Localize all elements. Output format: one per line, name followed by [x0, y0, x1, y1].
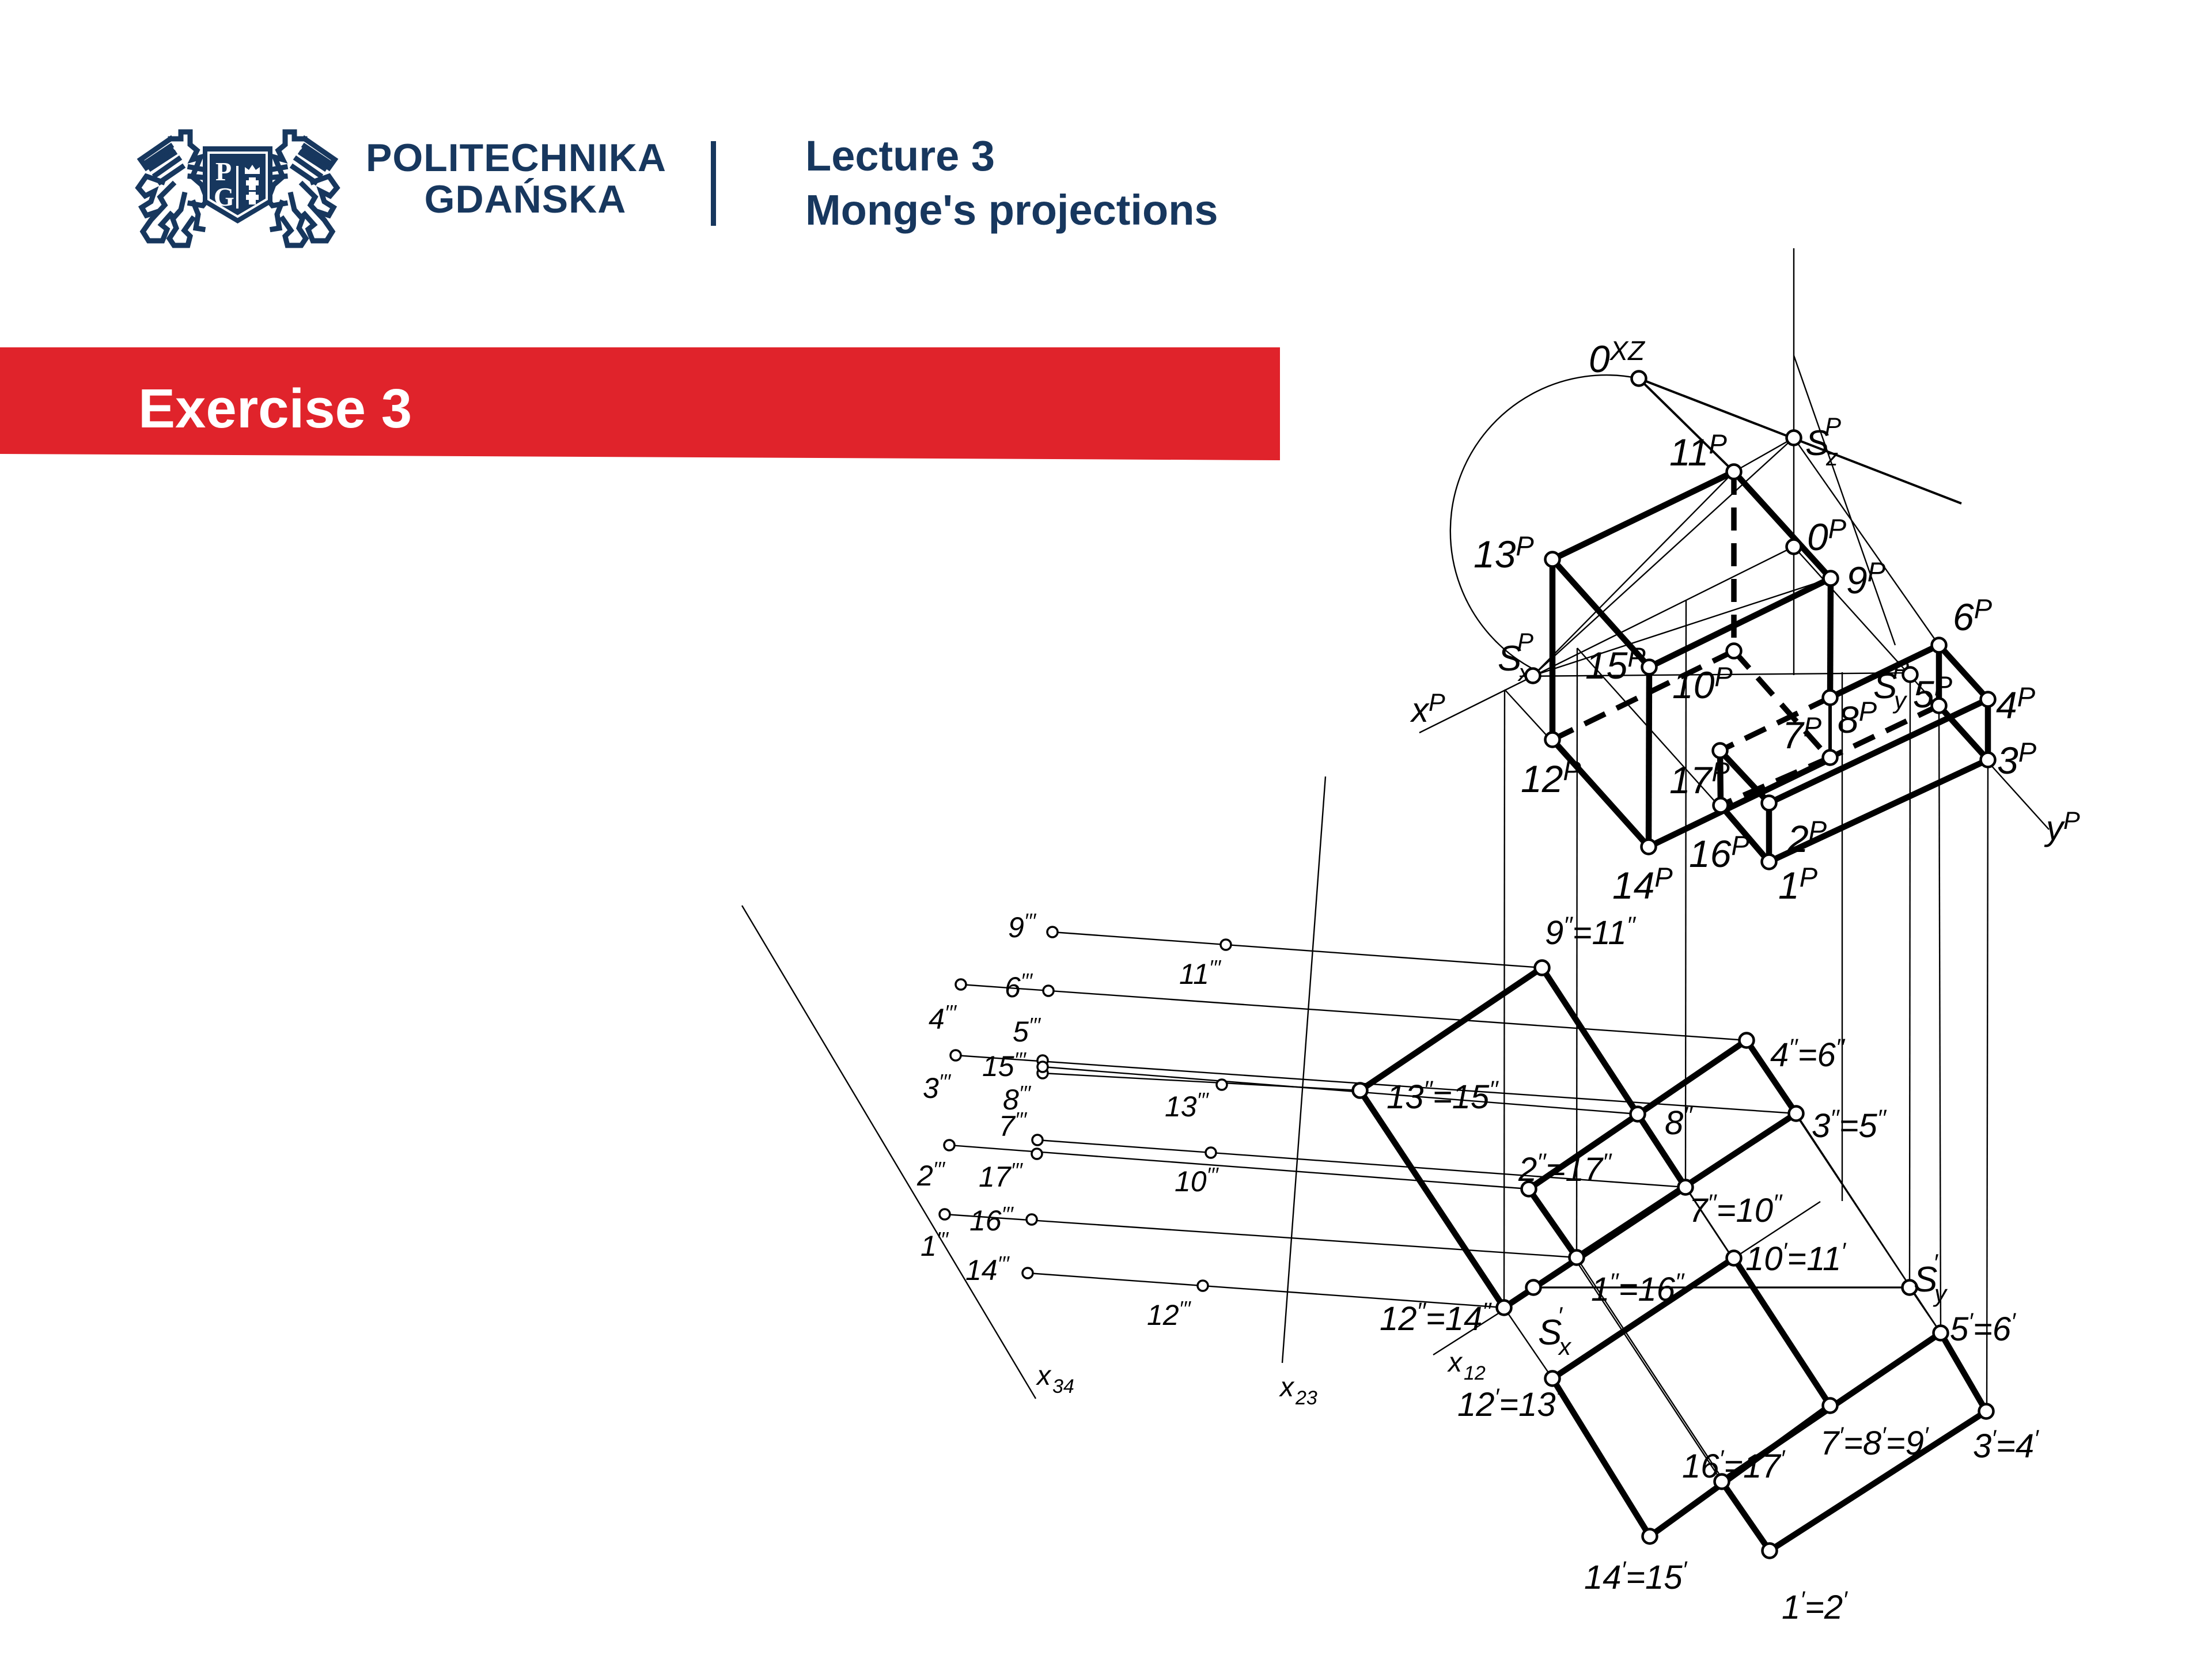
svg-text:y: y — [1933, 1280, 1948, 1307]
svg-text:P: P — [1825, 412, 1841, 440]
svg-text:12′=13′: 12′=13′ — [1457, 1384, 1561, 1423]
svg-text:9′′=11′′: 9′′=11′′ — [1545, 912, 1636, 952]
svg-text:GDAŃSKA: GDAŃSKA — [425, 177, 627, 221]
svg-text:y: y — [1892, 687, 1908, 714]
svg-text:3′′=5′′: 3′′=5′′ — [1812, 1105, 1887, 1145]
svg-text:14′=15′: 14′=15′ — [1584, 1556, 1688, 1596]
svg-text:x: x — [1447, 1347, 1463, 1378]
svg-text:z: z — [1825, 444, 1838, 471]
svg-text:P: P — [1893, 656, 1909, 683]
svg-text:7′=8′=9′: 7′=8′=9′ — [1820, 1422, 1929, 1462]
svg-text:10′=11′: 10′=11′ — [1745, 1238, 1846, 1278]
svg-text:4′′=6′′: 4′′=6′′ — [1770, 1034, 1845, 1074]
svg-text:1′′=16′′: 1′′=16′′ — [1591, 1268, 1685, 1308]
svg-text:G: G — [214, 182, 234, 211]
svg-text:12: 12 — [1464, 1362, 1486, 1384]
svg-text:7′′=10′′: 7′′=10′′ — [1689, 1190, 1783, 1229]
svg-text:Monge's projections: Monge's projections — [805, 186, 1218, 234]
svg-text:Exercise 3: Exercise 3 — [138, 378, 412, 440]
svg-text:x: x — [1036, 1361, 1052, 1391]
svg-text:2′′=17′′: 2′′=17′′ — [1518, 1149, 1612, 1188]
svg-text:5′=6′: 5′=6′ — [1950, 1308, 2016, 1348]
svg-text:x: x — [1558, 1333, 1572, 1360]
svg-text:P: P — [1517, 628, 1533, 655]
svg-text:23: 23 — [1295, 1387, 1317, 1409]
svg-text:34: 34 — [1052, 1376, 1074, 1397]
svg-text:12′′=14′′: 12′′=14′′ — [1380, 1298, 1492, 1338]
svg-text:16′=17′: 16′=17′ — [1682, 1445, 1786, 1485]
svg-text:13′′=15′′: 13′′=15′′ — [1387, 1076, 1499, 1116]
svg-text:x: x — [1279, 1372, 1295, 1403]
svg-text:Lecture 3: Lecture 3 — [805, 132, 995, 180]
svg-text:3′=4′: 3′=4′ — [1973, 1425, 2039, 1465]
svg-text:POLITECHNIKA: POLITECHNIKA — [366, 136, 666, 180]
svg-text:x: x — [1517, 659, 1532, 686]
svg-text:1′=2′: 1′=2′ — [1782, 1586, 1848, 1626]
